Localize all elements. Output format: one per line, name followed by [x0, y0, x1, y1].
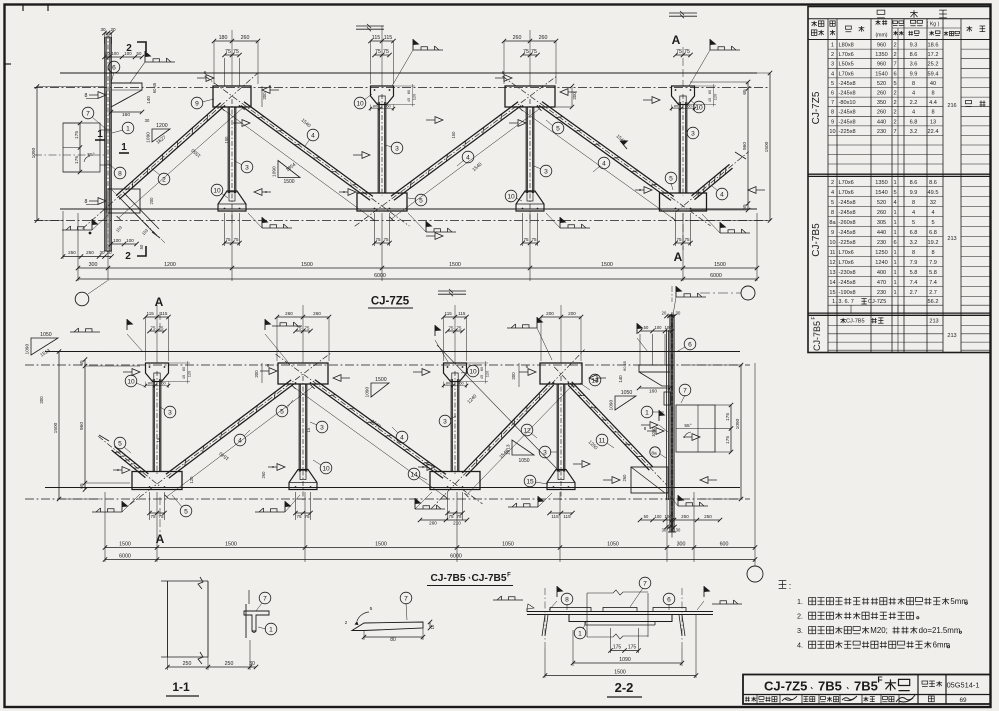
svg-text:05G514-1: 05G514-1 — [947, 681, 980, 690]
svg-text:4: 4 — [831, 190, 834, 196]
svg-text:3: 3 — [168, 409, 172, 416]
svg-text:75: 75 — [523, 237, 529, 242]
svg-text:14: 14 — [410, 471, 418, 478]
svg-text:120: 120 — [412, 93, 417, 100]
svg-text:15: 15 — [306, 427, 311, 432]
svg-text:4.4: 4.4 — [929, 100, 937, 106]
svg-text:1500: 1500 — [449, 262, 461, 268]
svg-text:1: 1 — [893, 260, 896, 266]
svg-text:9: 9 — [831, 119, 834, 125]
svg-text:7.9: 7.9 — [929, 260, 937, 266]
svg-text:-260x8: -260x8 — [839, 220, 856, 226]
svg-text:3.2: 3.2 — [910, 240, 918, 246]
svg-text:75: 75 — [684, 49, 690, 55]
svg-text:6000: 6000 — [374, 273, 386, 279]
svg-text:7.9: 7.9 — [910, 260, 918, 266]
svg-text:1500: 1500 — [375, 541, 387, 547]
svg-text:175: 175 — [74, 131, 80, 139]
svg-text:9: 9 — [195, 100, 199, 107]
svg-text:250: 250 — [68, 250, 76, 255]
svg-text:4: 4 — [466, 154, 470, 161]
svg-text:1: 1 — [893, 250, 896, 256]
svg-text:17.2: 17.2 — [928, 52, 939, 58]
svg-text:260: 260 — [877, 110, 886, 116]
svg-text:120: 120 — [189, 476, 194, 484]
svg-text:10: 10 — [469, 368, 477, 375]
svg-text:12: 12 — [523, 427, 531, 434]
svg-text:75: 75 — [150, 514, 156, 519]
svg-text:20: 20 — [110, 27, 116, 32]
svg-text:6: 6 — [667, 596, 671, 603]
svg-text:1: 1 — [578, 630, 582, 637]
svg-text:1: 1 — [893, 180, 896, 186]
svg-text:260: 260 — [877, 91, 886, 97]
svg-text:5: 5 — [893, 190, 896, 196]
svg-text:65: 65 — [79, 483, 85, 489]
svg-text:115: 115 — [551, 514, 559, 519]
svg-text:25.2: 25.2 — [928, 62, 939, 68]
svg-text:1250: 1250 — [875, 250, 887, 256]
svg-text:30: 30 — [145, 118, 150, 123]
svg-text:-225x8: -225x8 — [839, 240, 856, 246]
svg-text:49.5: 49.5 — [928, 190, 939, 196]
svg-text:45: 45 — [181, 375, 186, 379]
svg-text:400: 400 — [877, 270, 886, 276]
svg-text:1200: 1200 — [156, 123, 168, 129]
svg-text:4: 4 — [602, 160, 606, 167]
svg-text:(mm): (mm) — [875, 33, 887, 39]
svg-text:1. 3. 6. 7: 1. 3. 6. 7 — [832, 299, 854, 305]
svg-text:L50x5: L50x5 — [839, 62, 854, 68]
svg-text:-245x8: -245x8 — [839, 230, 856, 236]
svg-text:1: 1 — [893, 220, 896, 226]
svg-text:1: 1 — [97, 129, 103, 140]
svg-text:L70x6: L70x6 — [839, 180, 854, 186]
svg-text:520: 520 — [877, 200, 886, 206]
svg-text:2: 2 — [893, 119, 896, 125]
svg-text:260: 260 — [622, 474, 627, 482]
svg-text:80: 80 — [390, 637, 396, 643]
svg-text:30: 30 — [676, 527, 681, 532]
svg-text:440: 440 — [877, 119, 886, 125]
svg-text:3: 3 — [443, 418, 447, 425]
svg-text:1090: 1090 — [619, 657, 631, 663]
svg-text:100: 100 — [113, 238, 121, 243]
svg-text:6.8: 6.8 — [910, 230, 918, 236]
svg-text:F: F — [877, 675, 882, 685]
svg-text:1050: 1050 — [40, 332, 52, 338]
svg-text:2: 2 — [125, 251, 131, 262]
svg-text:30: 30 — [662, 527, 667, 532]
svg-text:22.4: 22.4 — [928, 129, 939, 135]
svg-text:6.8: 6.8 — [929, 230, 937, 236]
svg-text:7.4: 7.4 — [929, 280, 937, 286]
svg-text:10: 10 — [507, 193, 515, 200]
svg-text:12: 12 — [829, 260, 835, 266]
svg-text:do=21.5mm: do=21.5mm — [919, 626, 961, 635]
svg-text:160: 160 — [649, 389, 657, 395]
svg-text:CJ-7Z5: CJ-7Z5 — [811, 91, 822, 124]
svg-text:115: 115 — [372, 35, 380, 41]
svg-text:75: 75 — [233, 49, 239, 55]
svg-text:1: 1 — [893, 210, 896, 216]
svg-text:8: 8 — [912, 81, 915, 87]
svg-text:200: 200 — [254, 370, 259, 378]
svg-text:1090: 1090 — [609, 399, 615, 410]
svg-text:2.: 2. — [797, 611, 803, 620]
svg-text:6: 6 — [502, 70, 505, 76]
svg-text:-225x8: -225x8 — [839, 129, 856, 135]
svg-text:200: 200 — [511, 372, 516, 380]
svg-text:1: 1 — [645, 409, 649, 416]
svg-text:1: 1 — [893, 280, 896, 286]
svg-text:2: 2 — [893, 52, 896, 58]
svg-text:120: 120 — [187, 370, 192, 377]
svg-text:4: 4 — [400, 434, 404, 441]
svg-text:55°: 55° — [87, 152, 94, 158]
svg-text:120: 120 — [485, 370, 490, 377]
svg-text:8: 8 — [565, 596, 569, 603]
svg-text:5: 5 — [831, 200, 834, 206]
svg-text:140: 140 — [618, 375, 623, 383]
svg-text:60 45: 60 45 — [622, 360, 627, 371]
svg-text:5: 5 — [912, 220, 915, 226]
svg-text:3: 3 — [831, 62, 834, 68]
svg-text:10: 10 — [829, 240, 835, 246]
svg-text:7: 7 — [643, 580, 647, 587]
svg-text:1500: 1500 — [119, 541, 131, 547]
svg-text:175: 175 — [613, 645, 622, 651]
svg-text:5: 5 — [118, 440, 122, 447]
svg-text:19.2: 19.2 — [928, 240, 939, 246]
svg-text:260: 260 — [513, 35, 522, 41]
svg-text:4.: 4. — [797, 640, 803, 649]
svg-text:200: 200 — [262, 92, 267, 100]
svg-text:260: 260 — [241, 35, 250, 41]
svg-text:213: 213 — [947, 333, 956, 339]
svg-text:1: 1 — [126, 125, 130, 132]
svg-text:260: 260 — [285, 311, 293, 316]
svg-text:1: 1 — [121, 142, 127, 153]
svg-text:150: 150 — [224, 136, 229, 144]
svg-text:3.2: 3.2 — [910, 129, 918, 135]
svg-text:260: 260 — [877, 210, 886, 216]
svg-text:-245x8: -245x8 — [839, 91, 856, 97]
svg-text:CJ-7B5: CJ-7B5 — [812, 321, 822, 351]
svg-text:8: 8 — [831, 210, 834, 216]
svg-text:6: 6 — [112, 64, 116, 71]
svg-text:20: 20 — [106, 250, 112, 255]
svg-text:100: 100 — [665, 514, 673, 519]
svg-text:L70x6: L70x6 — [839, 250, 854, 256]
svg-text:250: 250 — [225, 661, 234, 667]
svg-text:470: 470 — [877, 280, 886, 286]
svg-text:75: 75 — [296, 514, 302, 519]
svg-text:8: 8 — [644, 426, 647, 431]
svg-text:8: 8 — [912, 250, 915, 256]
svg-text:180: 180 — [219, 35, 228, 41]
svg-text:4: 4 — [238, 437, 242, 444]
svg-text:10: 10 — [695, 104, 703, 111]
svg-text:1090: 1090 — [735, 418, 741, 429]
svg-text:6: 6 — [526, 364, 529, 370]
svg-text:CJ-7B5: CJ-7B5 — [430, 573, 465, 584]
svg-text:5.8: 5.8 — [929, 270, 937, 276]
svg-text:8.6: 8.6 — [929, 180, 937, 186]
svg-text:8: 8 — [931, 250, 934, 256]
svg-text:75: 75 — [151, 325, 156, 330]
svg-text:69: 69 — [959, 697, 967, 704]
svg-text:7: 7 — [86, 110, 90, 117]
svg-text:20: 20 — [105, 51, 110, 56]
svg-text:5: 5 — [831, 81, 834, 87]
svg-text:CJ-7B5: CJ-7B5 — [811, 223, 822, 257]
svg-text:L70x6: L70x6 — [839, 52, 854, 58]
svg-text:75: 75 — [676, 49, 682, 55]
svg-text:6: 6 — [893, 71, 896, 77]
svg-text:200: 200 — [546, 311, 554, 316]
svg-text:5: 5 — [669, 175, 673, 182]
svg-text:1090: 1090 — [25, 343, 31, 354]
svg-text:10: 10 — [322, 465, 330, 472]
svg-text:2.2: 2.2 — [910, 100, 918, 106]
svg-text:9.9: 9.9 — [910, 190, 918, 196]
svg-text:260: 260 — [429, 521, 437, 526]
svg-text:9.3: 9.3 — [910, 43, 918, 49]
svg-text:-80x10: -80x10 — [839, 100, 856, 106]
svg-text:F: F — [811, 316, 817, 319]
svg-text:3: 3 — [245, 164, 249, 171]
svg-text:2: 2 — [893, 43, 896, 49]
svg-text:10: 10 — [213, 187, 221, 194]
svg-text:A: A — [672, 33, 681, 47]
svg-text:L80x8: L80x8 — [839, 43, 854, 49]
svg-text:8: 8 — [931, 110, 934, 116]
svg-text:2.7: 2.7 — [929, 290, 937, 296]
svg-text:1350: 1350 — [875, 52, 887, 58]
svg-text:CJ-7Z5: CJ-7Z5 — [764, 679, 807, 694]
svg-text:8.6: 8.6 — [910, 52, 918, 58]
svg-text:6: 6 — [204, 70, 207, 76]
svg-text:15: 15 — [829, 290, 835, 296]
svg-text:115: 115 — [160, 311, 168, 316]
svg-text:2: 2 — [893, 91, 896, 97]
svg-text:100: 100 — [126, 238, 134, 243]
svg-text:1: 1 — [893, 230, 896, 236]
svg-text:50: 50 — [644, 514, 649, 519]
svg-text:140: 140 — [146, 96, 151, 104]
svg-text:9: 9 — [831, 230, 834, 236]
svg-text:1: 1 — [831, 43, 834, 49]
svg-text:2: 2 — [162, 176, 166, 183]
svg-text:4: 4 — [893, 200, 896, 206]
svg-text:3: 3 — [691, 130, 695, 137]
svg-text:32: 32 — [930, 200, 936, 206]
svg-text:7B5: 7B5 — [818, 679, 842, 694]
svg-text:100: 100 — [655, 514, 663, 519]
svg-text:-245x8: -245x8 — [839, 280, 856, 286]
svg-text:7: 7 — [683, 387, 687, 394]
svg-text:6: 6 — [269, 84, 272, 90]
svg-text:75: 75 — [684, 237, 690, 242]
svg-text:260: 260 — [313, 311, 321, 316]
svg-text:75: 75 — [457, 325, 462, 330]
svg-text:L70x6: L70x6 — [839, 260, 854, 266]
svg-text:3: 3 — [544, 168, 548, 175]
svg-text:75: 75 — [233, 237, 239, 242]
svg-text:6: 6 — [893, 240, 896, 246]
svg-text:5: 5 — [931, 220, 934, 226]
svg-text:2.7: 2.7 — [910, 290, 918, 296]
svg-text:1500: 1500 — [714, 262, 726, 268]
svg-text:75: 75 — [449, 325, 454, 330]
svg-text:2: 2 — [893, 110, 896, 116]
svg-text:A: A — [674, 250, 683, 264]
svg-text:5: 5 — [370, 606, 373, 612]
svg-text:75: 75 — [225, 237, 231, 242]
svg-text:305: 305 — [877, 220, 886, 226]
svg-text:600: 600 — [720, 541, 729, 547]
svg-text:175: 175 — [725, 413, 731, 421]
svg-text:3: 3 — [395, 145, 399, 152]
svg-text:1500: 1500 — [283, 179, 294, 185]
svg-text:75: 75 — [383, 49, 389, 55]
svg-text:45: 45 — [707, 98, 712, 102]
svg-text:75: 75 — [375, 49, 381, 55]
svg-text::: : — [789, 581, 792, 591]
svg-text:50: 50 — [137, 51, 142, 56]
svg-text:10: 10 — [356, 100, 364, 107]
svg-text:250: 250 — [681, 514, 689, 519]
svg-text:1350: 1350 — [875, 180, 887, 186]
svg-text:6000: 6000 — [450, 553, 462, 559]
svg-text:F: F — [507, 573, 511, 579]
svg-text:1500: 1500 — [225, 541, 237, 547]
svg-text:230: 230 — [877, 290, 886, 296]
svg-text:75: 75 — [531, 49, 537, 55]
svg-text:1050: 1050 — [607, 541, 619, 547]
svg-text:75: 75 — [305, 325, 310, 330]
svg-text:50: 50 — [644, 325, 649, 330]
svg-text:75: 75 — [531, 237, 537, 242]
svg-text:8a: 8a — [651, 450, 657, 456]
svg-text:260: 260 — [539, 35, 548, 41]
svg-text:1050: 1050 — [651, 427, 656, 437]
svg-text:175: 175 — [628, 645, 637, 651]
svg-text:100: 100 — [655, 325, 663, 330]
svg-text:115: 115 — [384, 35, 392, 41]
svg-text:8: 8 — [912, 200, 915, 206]
svg-text:100: 100 — [111, 51, 119, 56]
svg-text:65: 65 — [79, 360, 85, 366]
svg-text:5: 5 — [556, 125, 560, 132]
svg-text:100: 100 — [665, 325, 673, 330]
svg-text:75: 75 — [523, 49, 529, 55]
svg-text:20: 20 — [662, 310, 667, 315]
svg-text:1540: 1540 — [875, 71, 887, 77]
svg-text:L70x6: L70x6 — [839, 190, 854, 196]
svg-text:-245x8: -245x8 — [839, 81, 856, 87]
svg-text:2: 2 — [831, 180, 834, 186]
svg-text:75: 75 — [158, 514, 164, 519]
svg-text:30: 30 — [100, 27, 106, 32]
svg-text:1500: 1500 — [301, 262, 313, 268]
svg-text:250: 250 — [183, 661, 192, 667]
svg-text:10: 10 — [127, 378, 135, 385]
svg-text:4: 4 — [720, 191, 724, 198]
svg-text:115: 115 — [147, 311, 155, 316]
svg-text:1540: 1540 — [875, 190, 887, 196]
svg-text:-245x8: -245x8 — [839, 200, 856, 206]
svg-text:A: A — [155, 295, 164, 309]
svg-text:55°: 55° — [684, 423, 691, 429]
svg-text:5: 5 — [419, 197, 423, 204]
svg-text:115: 115 — [563, 514, 571, 519]
svg-text:6000: 6000 — [710, 273, 722, 279]
svg-text:120: 120 — [713, 93, 718, 100]
svg-text:6000: 6000 — [119, 553, 131, 559]
svg-text:115: 115 — [458, 311, 466, 316]
svg-text:1500: 1500 — [614, 669, 626, 675]
svg-text:3.: 3. — [797, 626, 803, 635]
svg-text:1: 1 — [893, 270, 896, 276]
svg-text:15: 15 — [156, 437, 161, 442]
svg-text:11: 11 — [830, 250, 836, 256]
svg-text:440: 440 — [877, 230, 886, 236]
svg-text:2-2: 2-2 — [615, 680, 634, 695]
svg-text:230: 230 — [877, 240, 886, 246]
svg-text:1090: 1090 — [31, 147, 37, 158]
svg-text:6.8: 6.8 — [910, 119, 918, 125]
svg-text:CJ-7Z5: CJ-7Z5 — [371, 296, 410, 308]
svg-text:8: 8 — [931, 91, 934, 97]
svg-text:2: 2 — [831, 52, 834, 58]
svg-text:4: 4 — [912, 110, 915, 116]
svg-text:18.6: 18.6 — [928, 43, 939, 49]
svg-text:CJ-7B5: CJ-7B5 — [846, 319, 865, 325]
svg-text:8: 8 — [85, 199, 88, 205]
svg-text:45: 45 — [479, 375, 484, 379]
svg-text:5: 5 — [280, 408, 284, 415]
svg-text:59.4: 59.4 — [928, 71, 939, 77]
svg-text:5: 5 — [893, 81, 896, 87]
svg-text:14: 14 — [829, 280, 835, 286]
svg-text:1090: 1090 — [365, 386, 371, 397]
svg-text:-245x8: -245x8 — [839, 110, 856, 116]
svg-text:150: 150 — [451, 131, 456, 139]
svg-text:960: 960 — [877, 43, 886, 49]
svg-text:75: 75 — [225, 49, 231, 55]
svg-text:60 45: 60 45 — [152, 82, 157, 93]
svg-text:50: 50 — [139, 244, 144, 249]
svg-text:250: 250 — [704, 514, 712, 519]
svg-text:175: 175 — [725, 436, 731, 444]
svg-text:8: 8 — [118, 170, 122, 177]
svg-text:8.6: 8.6 — [910, 180, 918, 186]
svg-text:30: 30 — [99, 250, 105, 255]
svg-text:200: 200 — [568, 311, 576, 316]
svg-text:75: 75 — [159, 325, 164, 330]
svg-text:115: 115 — [445, 311, 453, 316]
svg-text:4: 4 — [912, 91, 915, 97]
svg-text:CJ-7Z5: CJ-7Z5 — [868, 299, 886, 305]
svg-text:7: 7 — [893, 129, 896, 135]
svg-text:5.8: 5.8 — [910, 270, 918, 276]
svg-text:250: 250 — [86, 250, 94, 255]
svg-text:4: 4 — [931, 210, 934, 216]
svg-text:213: 213 — [929, 319, 938, 325]
svg-text:4: 4 — [831, 71, 834, 77]
